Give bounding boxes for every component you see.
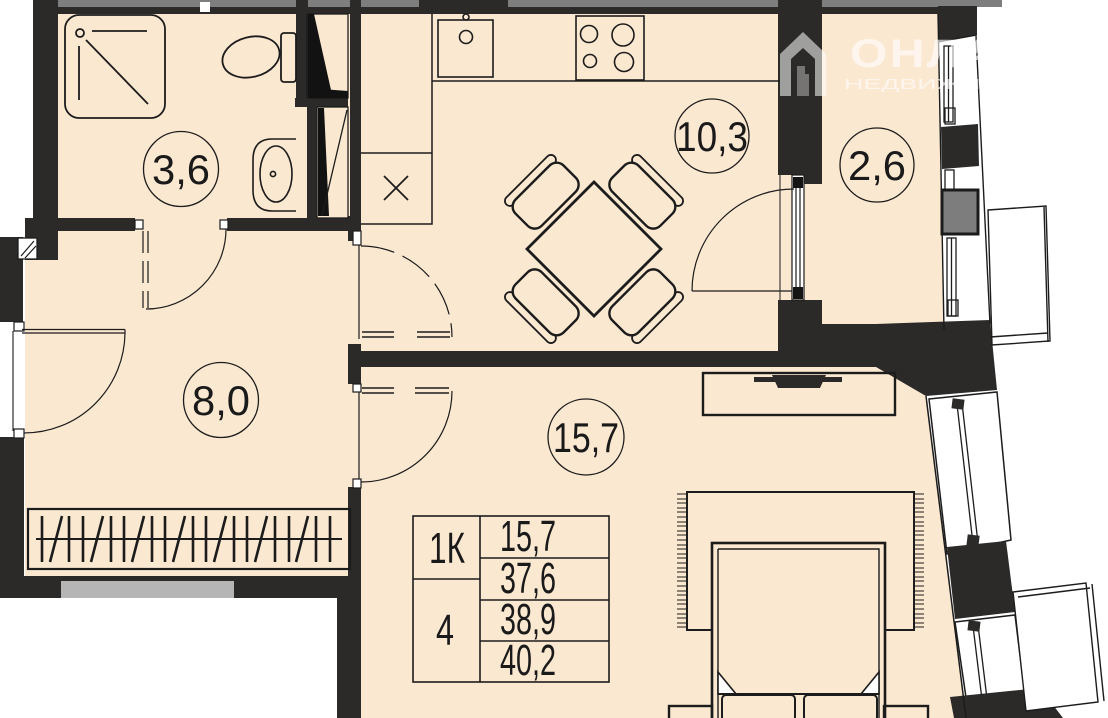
svg-text:НЕДВИЖИМОСТЬ: НЕДВИЖИМОСТЬ (844, 76, 1076, 93)
svg-text:3,6: 3,6 (152, 146, 210, 193)
svg-text:15,7: 15,7 (553, 414, 619, 461)
svg-text:1К: 1К (429, 524, 465, 573)
svg-text:40,2: 40,2 (500, 636, 556, 685)
svg-text:10,3: 10,3 (676, 113, 748, 160)
svg-text:8,0: 8,0 (192, 377, 250, 424)
svg-text:2,6: 2,6 (848, 142, 906, 189)
svg-text:4: 4 (436, 606, 454, 655)
svg-text:ОНЛАЙТ: ОНЛАЙТ (850, 30, 1069, 76)
